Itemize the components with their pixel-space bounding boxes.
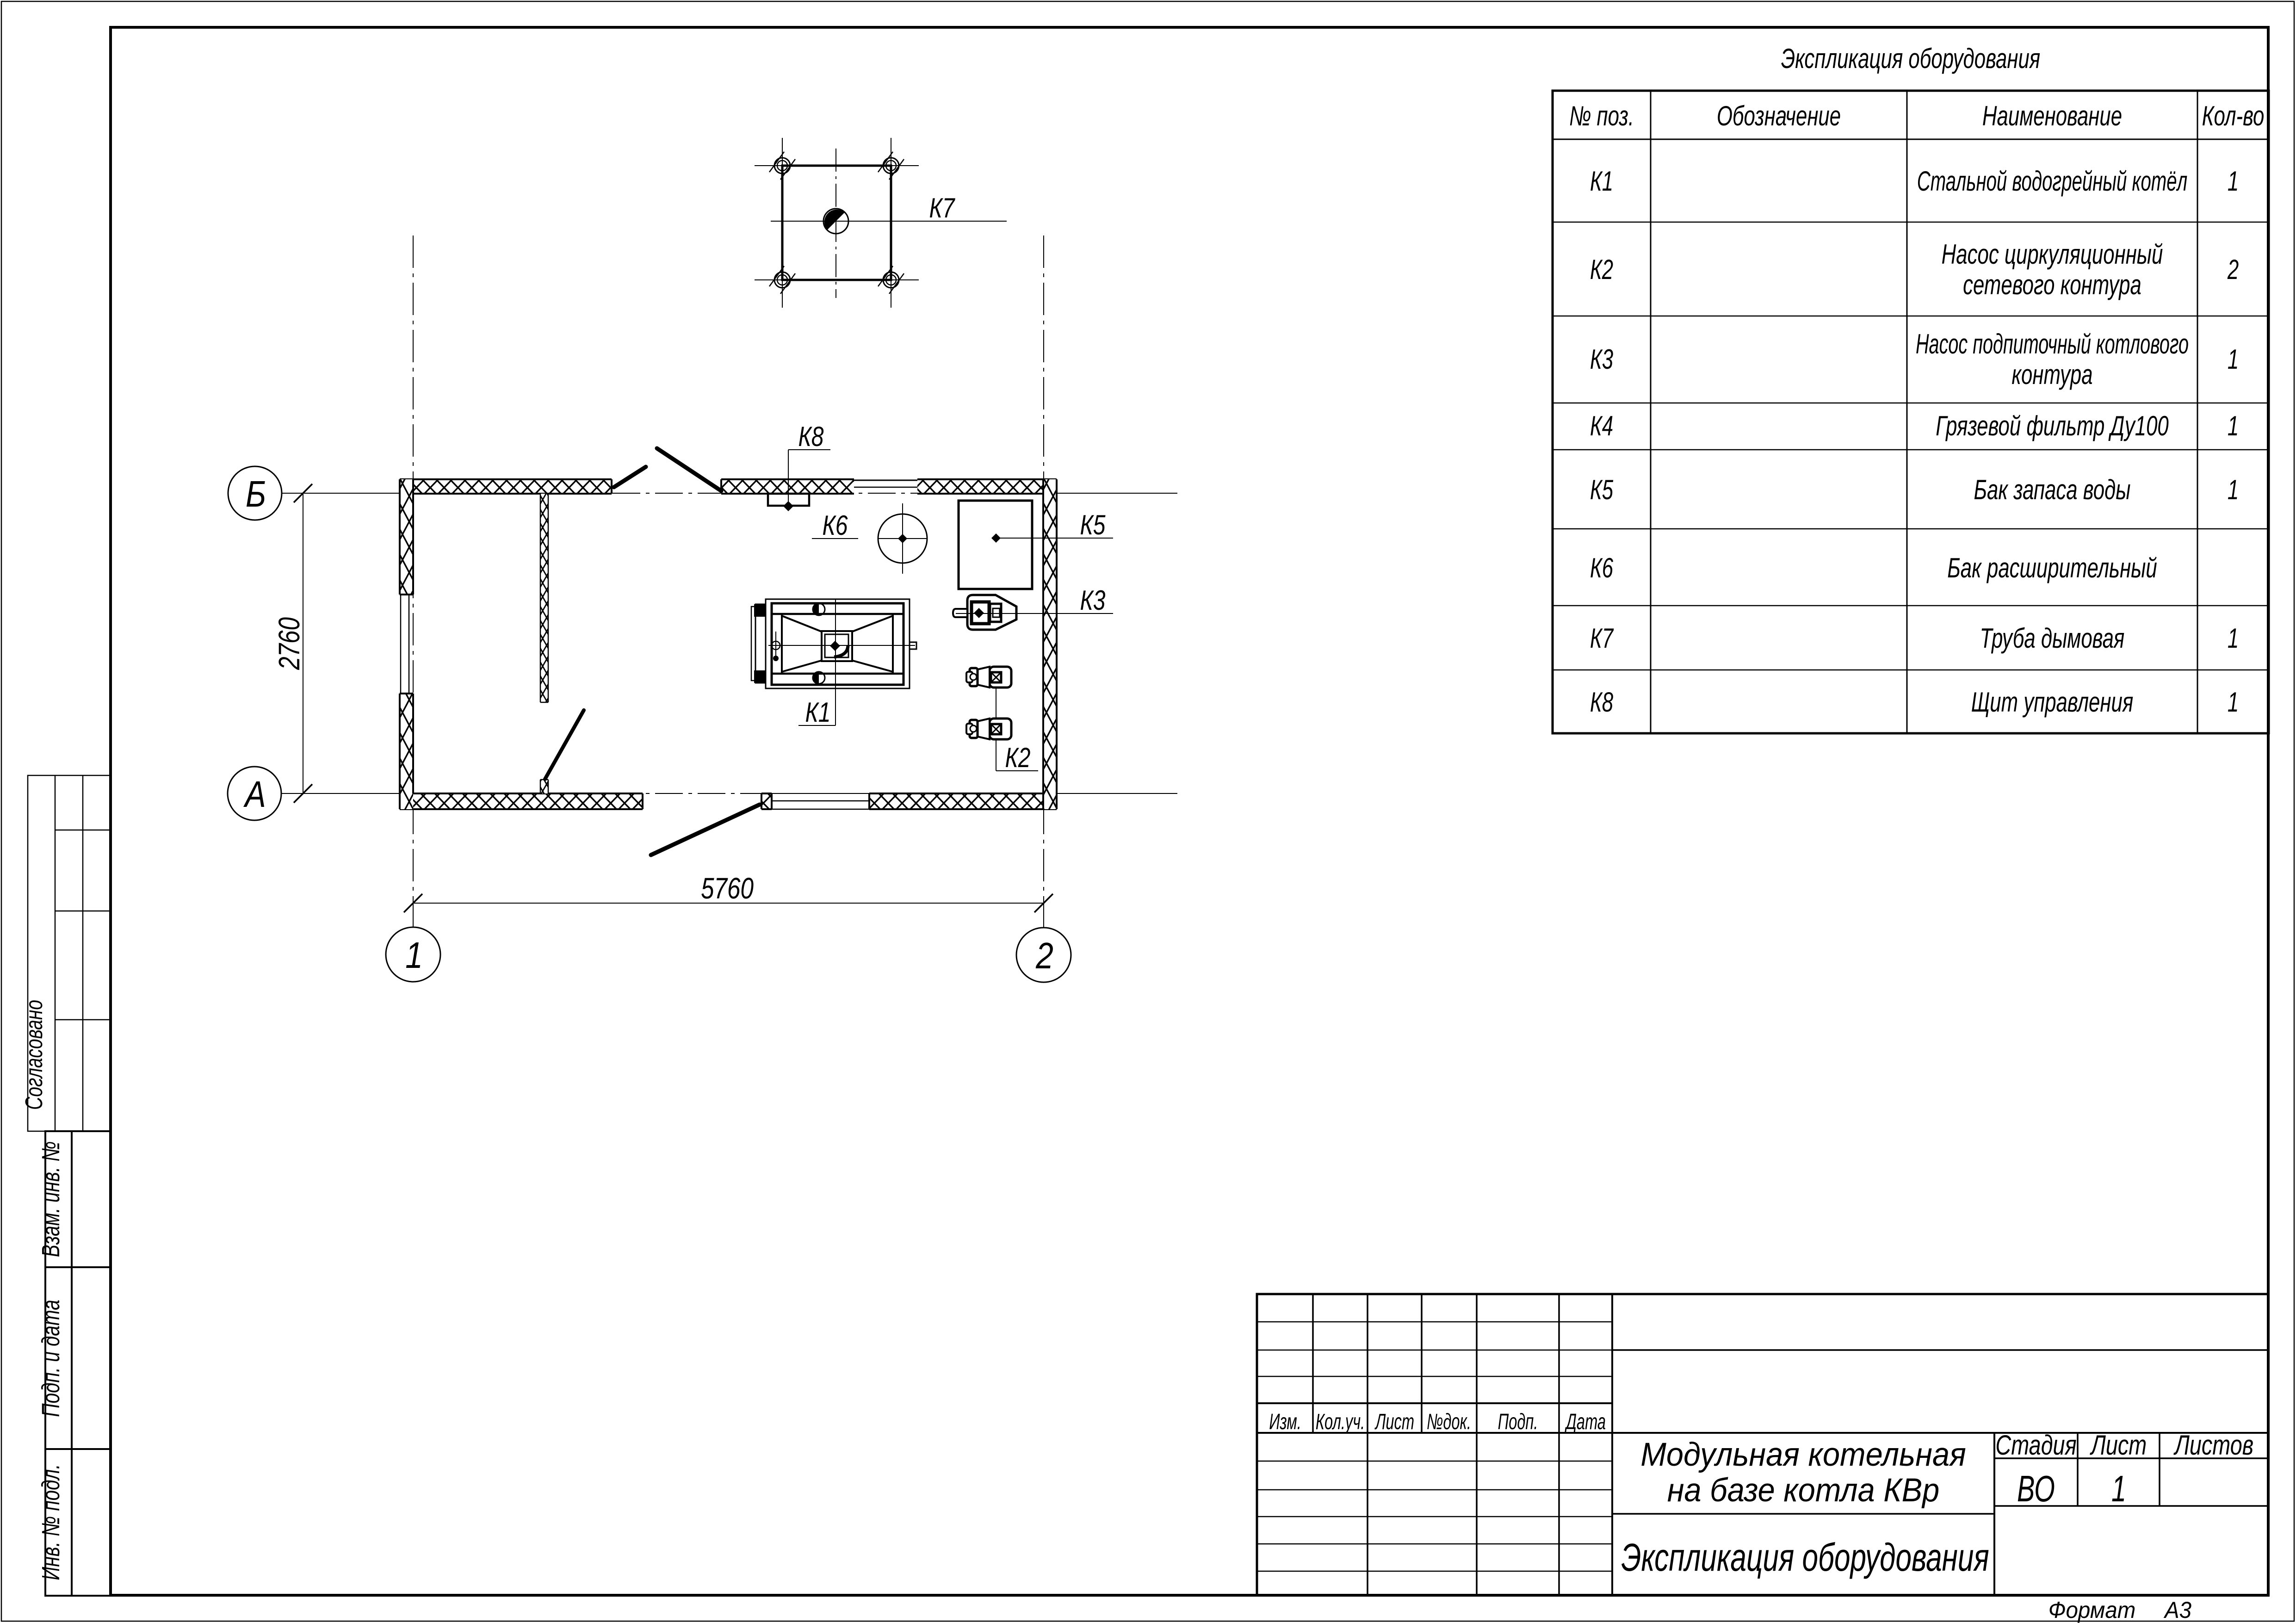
svg-text:1: 1 — [2228, 166, 2239, 197]
svg-text:Модульная котельная: Модульная котельная — [1640, 1436, 1966, 1473]
svg-text:К2: К2 — [1005, 742, 1031, 773]
svg-text:Стальной водогрейный котёл: Стальной водогрейный котёл — [1917, 166, 2188, 197]
svg-text:Наименование: Наименование — [1982, 100, 2122, 131]
svg-text:Кол.уч.: Кол.уч. — [1316, 1409, 1365, 1434]
svg-text:К7: К7 — [929, 192, 956, 223]
svg-text:Листов: Листов — [2173, 1430, 2253, 1461]
svg-text:Стадия: Стадия — [1995, 1430, 2076, 1461]
svg-text:Экспликация оборудования: Экспликация оборудования — [1781, 43, 2040, 74]
svg-text:1: 1 — [405, 935, 423, 976]
svg-text:К5: К5 — [1590, 474, 1614, 505]
svg-text:Согласовано: Согласовано — [20, 1000, 47, 1110]
svg-text:К1: К1 — [805, 697, 831, 728]
svg-text:Труба дымовая: Труба дымовая — [1980, 623, 2125, 654]
svg-text:1: 1 — [2228, 474, 2239, 505]
svg-text:№док.: №док. — [1427, 1409, 1471, 1434]
svg-text:Кол-во: Кол-во — [2202, 100, 2265, 131]
svg-text:К6: К6 — [823, 510, 848, 541]
svg-text:ВО: ВО — [2017, 1468, 2055, 1510]
svg-text:Бак расширительный: Бак расширительный — [1947, 552, 2157, 583]
svg-text:К7: К7 — [1590, 623, 1614, 654]
svg-text:К8: К8 — [798, 421, 824, 452]
svg-text:Бак запаса воды: Бак запаса воды — [1974, 474, 2131, 505]
svg-text:Обозначение: Обозначение — [1717, 100, 1841, 131]
svg-text:1: 1 — [2228, 344, 2239, 375]
svg-text:1: 1 — [2228, 410, 2239, 441]
svg-text:Насос подпиточный котлового: Насос подпиточный котлового — [1916, 328, 2189, 359]
svg-text:К8: К8 — [1590, 687, 1613, 718]
svg-text:К2: К2 — [1590, 254, 1613, 285]
svg-text:1: 1 — [2228, 687, 2239, 718]
svg-text:К6: К6 — [1590, 552, 1614, 583]
svg-text:Щит управления: Щит управления — [1971, 687, 2133, 718]
svg-text:2: 2 — [1035, 935, 1053, 976]
svg-text:К4: К4 — [1590, 410, 1613, 441]
svg-text:К3: К3 — [1590, 344, 1613, 375]
svg-text:на базе котла КВр: на базе котла КВр — [1667, 1472, 1939, 1508]
svg-text:Экспликация оборудования: Экспликация оборудования — [1621, 1536, 1989, 1579]
svg-text:А: А — [243, 774, 266, 815]
svg-text:Взам. инв. №: Взам. инв. № — [37, 1141, 65, 1257]
svg-text:Насос циркуляционный: Насос циркуляционный — [1942, 239, 2163, 270]
svg-text:Подп.: Подп. — [1498, 1409, 1538, 1434]
svg-text:5760: 5760 — [701, 873, 754, 905]
svg-text:2760: 2760 — [273, 617, 306, 670]
svg-text:Грязевой фильтр Ду100: Грязевой фильтр Ду100 — [1936, 410, 2169, 441]
svg-text:А3: А3 — [2163, 1598, 2191, 1623]
svg-text:Дата: Дата — [1565, 1409, 1606, 1434]
svg-text:Инв. № подл.: Инв. № подл. — [37, 1464, 65, 1580]
svg-text:контура: контура — [2011, 359, 2092, 390]
svg-text:№ поз.: № поз. — [1569, 100, 1634, 131]
svg-text:Изм.: Изм. — [1269, 1409, 1301, 1434]
svg-text:1: 1 — [2228, 623, 2239, 654]
svg-text:2: 2 — [2227, 254, 2239, 285]
svg-text:К5: К5 — [1080, 509, 1106, 540]
svg-text:Формат: Формат — [2048, 1598, 2136, 1623]
svg-text:К3: К3 — [1080, 585, 1106, 616]
svg-text:Подп. и дата: Подп. и дата — [37, 1300, 65, 1417]
svg-text:1: 1 — [2111, 1468, 2126, 1510]
svg-text:Лист: Лист — [2090, 1430, 2147, 1461]
svg-text:сетевого контура: сетевого контура — [1963, 269, 2141, 300]
svg-text:Лист: Лист — [1374, 1409, 1414, 1434]
svg-text:Б: Б — [246, 473, 266, 514]
svg-text:К1: К1 — [1590, 166, 1613, 197]
